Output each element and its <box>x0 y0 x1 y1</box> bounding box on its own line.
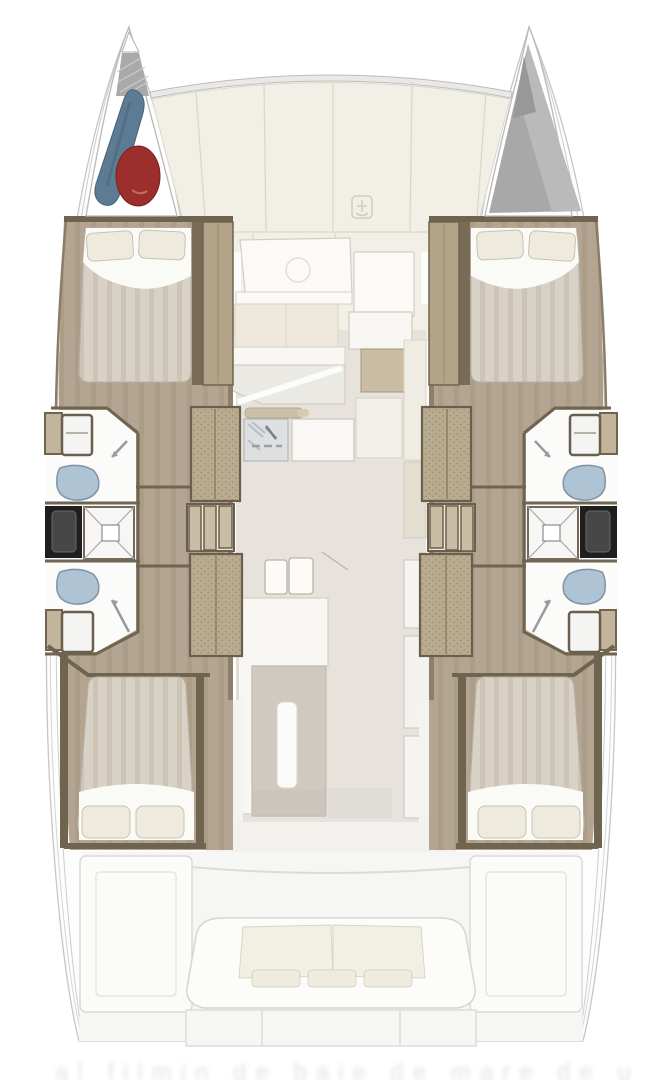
svg-text:al filmin de baie de mare de u: al filmin de baie de mare de u <box>55 1059 640 1080</box>
